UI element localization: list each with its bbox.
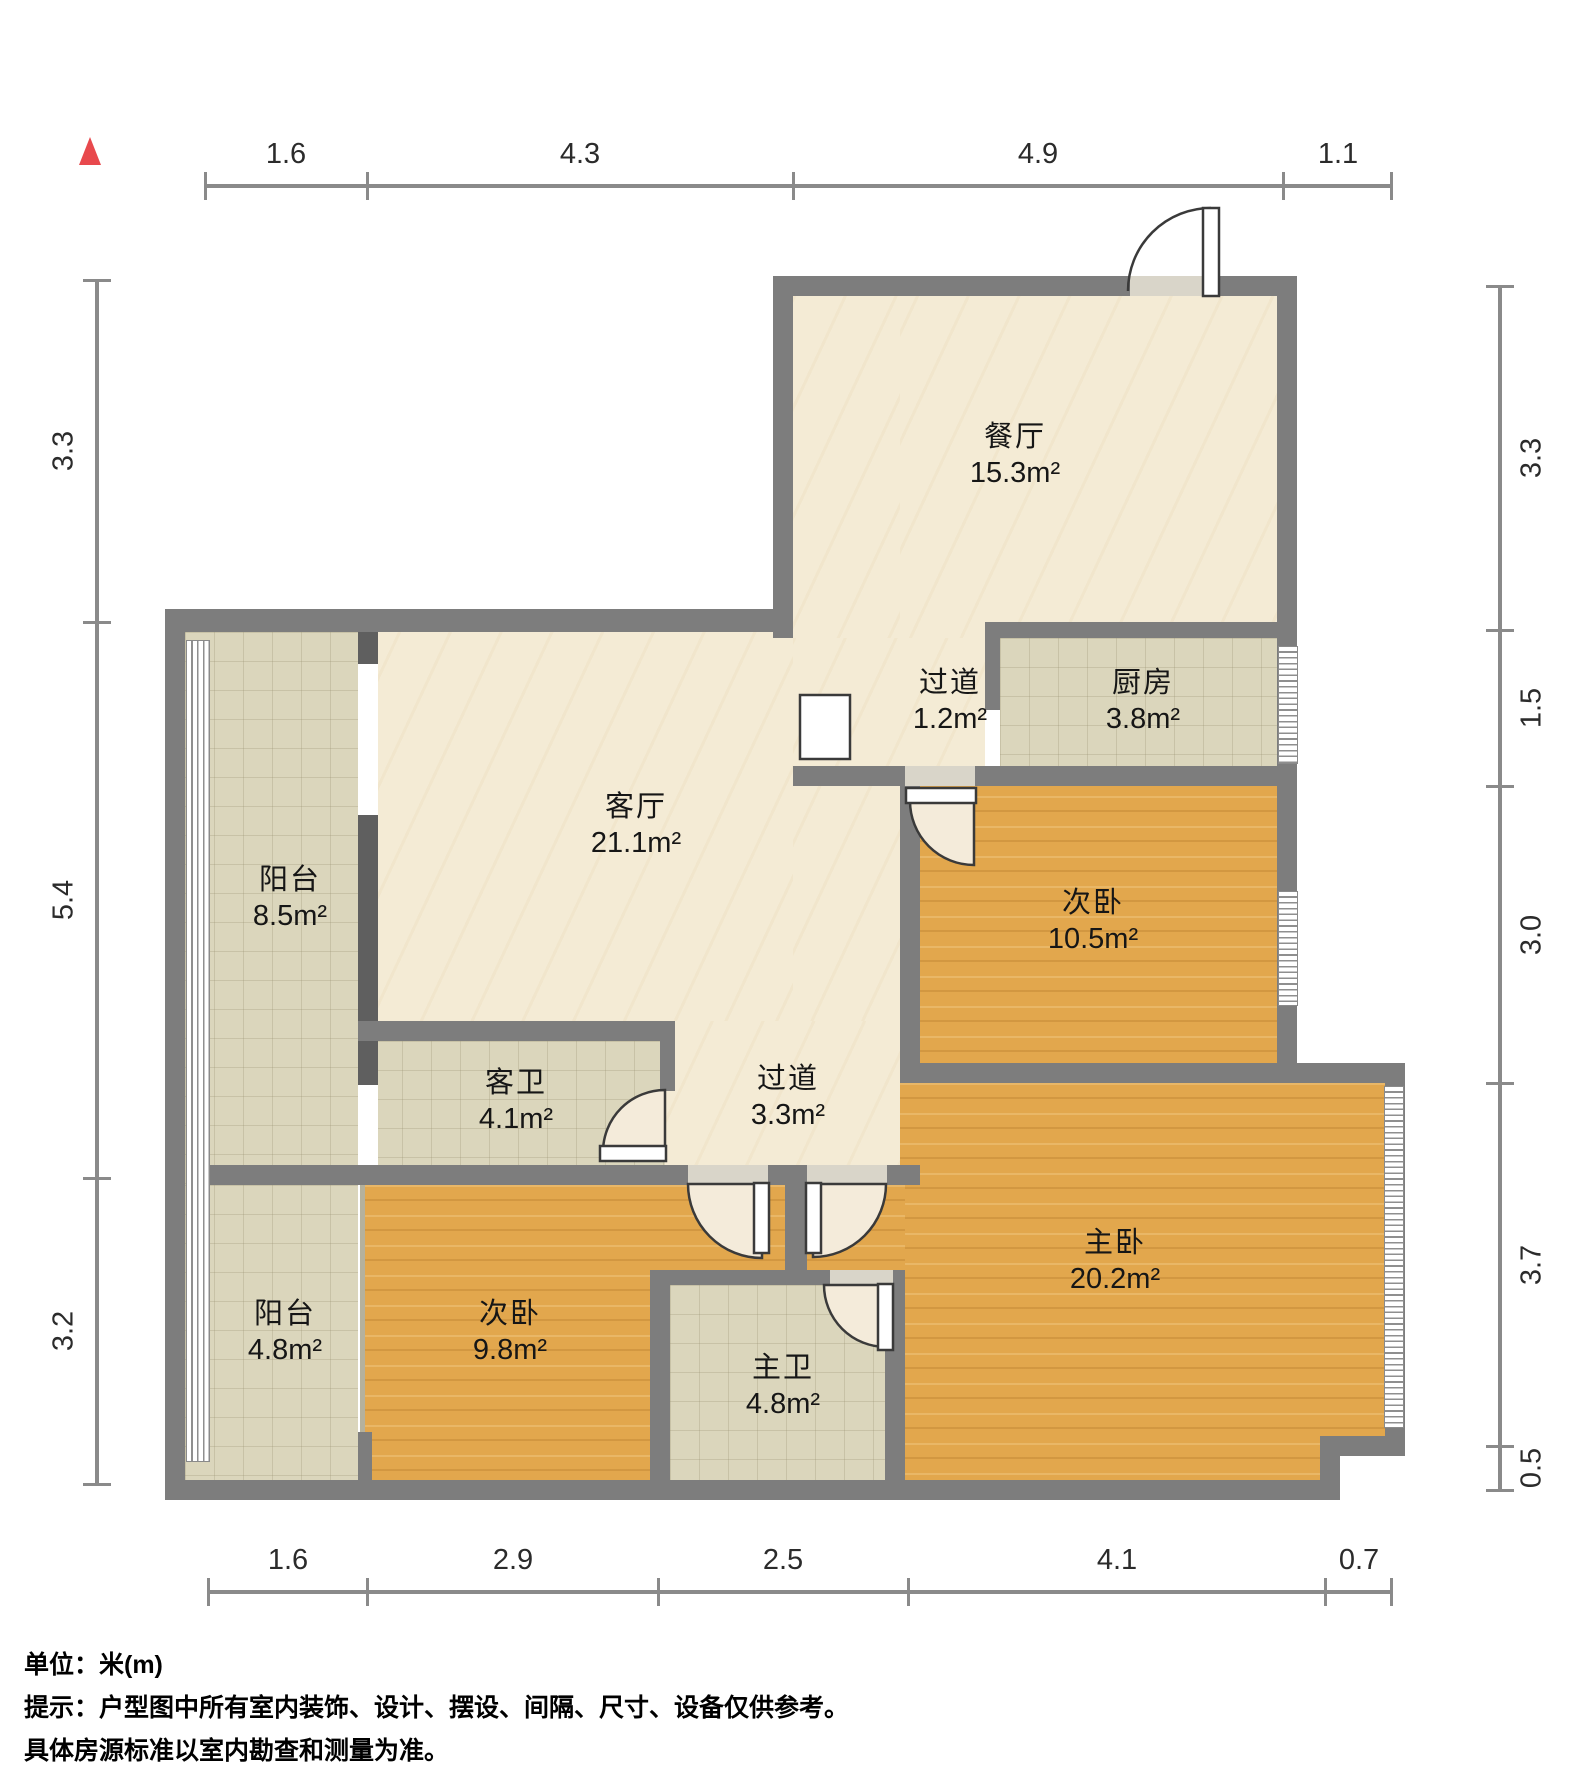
dim-tick (366, 172, 369, 200)
kitchen-opening (985, 710, 1000, 766)
wall-bottom (165, 1480, 1340, 1500)
dim-tick (1486, 785, 1514, 788)
dim-tick (207, 1578, 210, 1606)
wall-balcony-south-stub (358, 1432, 372, 1480)
dim-left-1: 3.3 (48, 431, 81, 471)
dim-line-top (205, 184, 1393, 188)
room-label-dining: 餐厅 15.3m² (970, 419, 1060, 491)
dim-tick (1486, 1489, 1514, 1492)
wall-balcony-divider-b (358, 815, 378, 1085)
note-unit: 单位：米(m) (24, 1645, 163, 1681)
room-label-master-bedroom: 主卧 20.2m² (1070, 1225, 1160, 1297)
wall-masterbath-right (885, 1285, 905, 1480)
dim-tick (1390, 172, 1393, 200)
wall-living-top (165, 609, 793, 632)
window-bedroom-2 (1278, 891, 1298, 1006)
room-label-balcony-south: 阳台 4.8m² (248, 1296, 322, 1368)
room-label-bedroom-2: 次卧 10.5m² (1048, 885, 1138, 957)
dim-bottom-4: 4.1 (1097, 1544, 1137, 1577)
dim-line-bottom (208, 1590, 1392, 1594)
wall-middle-a (209, 1165, 688, 1185)
dim-line-left (95, 280, 99, 1484)
dim-tick (83, 1483, 111, 1486)
room-label-hallway: 过道 3.3m² (751, 1061, 825, 1133)
dim-tick (792, 172, 795, 200)
dim-bottom-1: 1.6 (268, 1544, 308, 1577)
wall-guestbath-right (660, 1041, 675, 1091)
room-label-hallway-small: 过道 1.2m² (913, 665, 987, 737)
corner-notch (1340, 1456, 1405, 1500)
balcony-south-divider (360, 1185, 365, 1432)
master-passage-floor (807, 1185, 905, 1280)
window-master (1384, 1086, 1404, 1428)
room-label-balcony-north: 阳台 8.5m² (253, 862, 327, 934)
room-label-guest-bath: 客卫 4.1m² (479, 1065, 553, 1137)
wall-bedroom2-top-b (975, 766, 1297, 786)
wall-kitchen-top (985, 622, 1297, 638)
dim-bottom-2: 2.9 (493, 1544, 533, 1577)
dim-top-3: 4.9 (1018, 138, 1058, 171)
dim-right-1: 3.3 (1516, 438, 1549, 478)
wall-master-top (900, 1063, 1405, 1083)
balcony-opening-b (358, 1085, 378, 1165)
wall-step (1320, 1436, 1340, 1500)
floor-plan: 餐厅 15.3m² 过道 1.2m² 厨房 3.8m² 客厅 21.1m² 阳台… (0, 0, 1592, 1783)
dim-tick (1486, 629, 1514, 632)
wall-masterbath-top-b (893, 1270, 905, 1285)
dim-tick (1282, 172, 1285, 200)
dim-tick (1486, 285, 1514, 288)
masterbath-door-threshold (830, 1270, 893, 1285)
wall-masterbath-left (650, 1285, 670, 1480)
dim-tick (1324, 1578, 1327, 1606)
room-label-kitchen: 厨房 3.8m² (1106, 665, 1180, 737)
wall-bedroom2-top-a (793, 766, 905, 786)
room-label-bedroom-3: 次卧 9.8m² (473, 1296, 547, 1368)
dim-right-5: 0.5 (1516, 1448, 1549, 1488)
note-disclaimer-1: 提示：户型图中所有室内装饰、设计、摆设、间隔、尺寸、设备仅供参考。 (24, 1688, 849, 1724)
balcony-opening-a (358, 664, 378, 815)
wall-guestbath-top (358, 1021, 675, 1041)
dim-bottom-3: 2.5 (763, 1544, 803, 1577)
dim-right-4: 3.7 (1516, 1245, 1549, 1285)
dim-tick (83, 1177, 111, 1180)
dim-tick (366, 1578, 369, 1606)
bedroom2-door-threshold (905, 766, 975, 786)
dim-tick (657, 1578, 660, 1606)
wall-balcony-divider-a (358, 632, 378, 664)
dim-line-right (1498, 286, 1502, 1490)
wall-top-left (773, 276, 1130, 296)
dim-tick (907, 1578, 910, 1606)
wall-middle-b (768, 1165, 807, 1185)
dim-right-2: 1.5 (1516, 688, 1549, 728)
dim-left-2: 5.4 (48, 880, 81, 920)
dim-tick (1390, 1578, 1393, 1606)
dim-bottom-5: 0.7 (1339, 1544, 1379, 1577)
dim-tick (1486, 1445, 1514, 1448)
wall-stub (785, 1185, 807, 1270)
window-left (186, 640, 210, 1462)
dim-tick (83, 279, 111, 282)
entrance-threshold (1130, 276, 1204, 296)
wall-kitchen-left (985, 638, 1000, 710)
bedroom3-door-threshold (688, 1165, 768, 1185)
dim-top-4: 1.1 (1318, 138, 1358, 171)
window-kitchen (1278, 646, 1298, 764)
dim-left-3: 3.2 (48, 1311, 81, 1351)
dim-right-3: 3.0 (1516, 915, 1549, 955)
wall-left-outer (165, 609, 185, 1500)
dim-tick (204, 172, 207, 200)
wall-top-right (1218, 276, 1297, 296)
north-triangle-icon (79, 137, 101, 165)
wall-masterbath-top-a (650, 1270, 830, 1285)
dim-tick (1486, 1082, 1514, 1085)
dim-top-2: 4.3 (560, 138, 600, 171)
room-label-master-bath: 主卫 4.8m² (746, 1350, 820, 1422)
room-label-living: 客厅 21.1m² (591, 789, 681, 861)
note-disclaimer-2: 具体房源标准以室内勘查和测量为准。 (24, 1731, 449, 1767)
wall-bedroom2-left (900, 786, 920, 1063)
dim-tick (83, 621, 111, 624)
living-floor (358, 609, 793, 1021)
master-door-threshold (807, 1165, 887, 1185)
wall-middle-c (887, 1165, 920, 1185)
dim-top-1: 1.6 (266, 138, 306, 171)
wall-dining-left (773, 296, 793, 638)
